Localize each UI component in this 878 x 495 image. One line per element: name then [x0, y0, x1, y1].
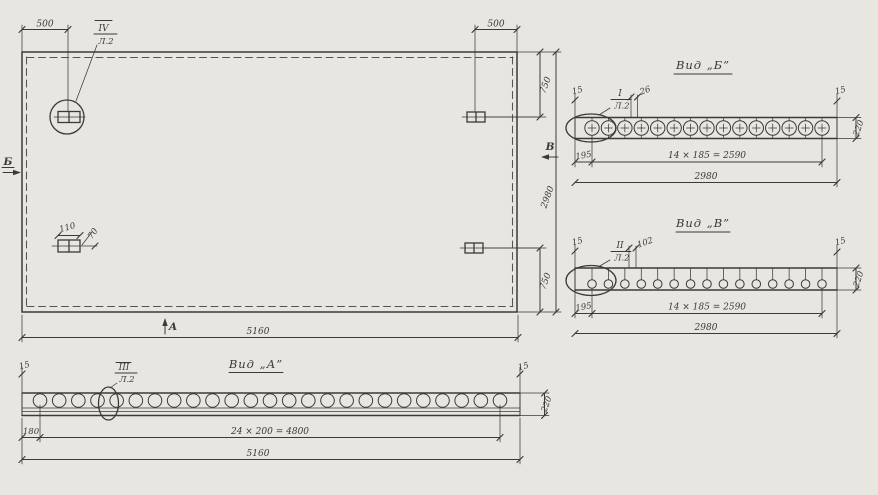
hole	[455, 394, 469, 408]
dim-500-right-label: 500	[487, 20, 504, 30]
dim-a-thickness: 220	[520, 390, 555, 419]
hole	[167, 394, 181, 408]
hole	[302, 394, 316, 408]
view-v-bolts	[588, 268, 827, 288]
hole	[52, 394, 66, 408]
hole	[801, 280, 810, 289]
hole	[752, 280, 761, 289]
hole	[397, 394, 411, 408]
dim-195-label: 195	[575, 150, 593, 163]
dim-15-label: 15	[834, 85, 847, 97]
dim-b-edge-left: 15	[571, 85, 584, 117]
dim-right-vertical: 750 750 2980	[483, 49, 561, 315]
hole	[588, 280, 597, 289]
dim-110-label: 110	[58, 221, 77, 235]
panel-outline	[22, 52, 517, 312]
dim-2980-label: 2980	[539, 185, 557, 211]
hole	[604, 280, 613, 289]
dim-b-holes: 195 14 × 185 = 2590	[572, 136, 825, 167]
hole	[736, 280, 745, 289]
hole	[72, 394, 86, 408]
dim-500-left-label: 500	[36, 20, 53, 30]
arrow-head	[13, 170, 21, 175]
dim-15-label: 15	[18, 360, 31, 372]
section-arrow-b-left: Б	[2, 156, 21, 175]
hole	[785, 280, 794, 289]
hole	[436, 394, 450, 408]
dim-a-edge-right: 15	[517, 361, 530, 392]
dim-102-label: 102	[636, 236, 655, 251]
callout-iv-ref: IV	[97, 24, 110, 34]
dim-4800-label: 24 × 200 = 4800	[230, 427, 309, 437]
dim-195-label: 195	[575, 301, 593, 314]
arrow-head	[541, 154, 549, 159]
dim-plan-width: 5160	[19, 315, 521, 342]
dim-b-total: 2980	[572, 139, 840, 188]
drawing-sheet: 500 IV Л.2 500	[0, 0, 878, 495]
hole	[653, 280, 662, 289]
callout-iii-sheet: Л.2	[118, 375, 134, 385]
view-b: Вид „Б” I Л.2 26 1	[566, 58, 867, 187]
arrow-b-label: Б	[3, 156, 13, 168]
dim-15-label: 15	[517, 361, 530, 373]
dim-220-label: 220	[539, 394, 554, 414]
callout-iv-sheet: Л.2	[97, 37, 113, 47]
dim-15-label: 15	[834, 236, 847, 248]
view-v-title: Вид „В”	[675, 216, 730, 230]
dim-a-holes: 180 24 × 200 = 4800	[19, 405, 503, 442]
dim-b-hole-dia: 26	[628, 84, 653, 117]
hole	[129, 394, 143, 408]
view-a-title: Вид „А”	[228, 357, 283, 371]
dim-b-thickness: 220	[837, 115, 867, 142]
section-arrow-v-right: В	[541, 141, 558, 160]
callout-oval	[566, 266, 616, 296]
arrow-v-label: В	[545, 141, 555, 153]
callout-i: I Л.2	[599, 89, 631, 115]
hole	[686, 280, 695, 289]
hole	[321, 394, 335, 408]
anchor-detail-mid-left: 110 70	[52, 221, 101, 252]
dim-v-bolts: 195 14 × 185 = 2590	[572, 289, 825, 318]
hole	[768, 280, 777, 289]
dim-70-label: 70	[86, 226, 101, 241]
dim-750-bottom-label: 750	[538, 271, 553, 291]
view-a: Вид „А” III Л.2 15	[18, 357, 555, 464]
dim-5160-label: 5160	[247, 449, 270, 459]
anchor-detail-top-left	[50, 100, 85, 134]
dim-b-edge-right: 15	[834, 85, 847, 117]
dim-v-thickness: 220	[837, 265, 867, 293]
dim-26-label: 26	[638, 84, 653, 98]
arrow-head	[162, 318, 167, 326]
hole	[670, 280, 679, 289]
dim-2590-label: 14 × 185 = 2590	[668, 151, 746, 161]
hole	[378, 394, 392, 408]
hole	[637, 280, 646, 289]
dim-15-label: 15	[571, 85, 584, 97]
dim-a-edge-left: 15	[18, 360, 31, 392]
dim-v-edge-right: 15	[834, 236, 847, 268]
view-a-holes	[33, 394, 507, 408]
callout-iii-ref: III	[118, 363, 130, 373]
hole	[244, 394, 258, 408]
hole	[719, 280, 728, 289]
hole	[417, 394, 431, 408]
view-a-strip	[22, 393, 520, 416]
view-b-title: Вид „Б”	[675, 58, 730, 72]
hole	[340, 394, 354, 408]
callout-iii: III Л.2	[110, 363, 137, 389]
hole	[206, 394, 220, 408]
dim-2590-label: 14 × 185 = 2590	[668, 303, 746, 313]
callout-ii-ref: II	[615, 241, 624, 251]
hole	[91, 394, 105, 408]
dim-5160-label: 5160	[247, 327, 270, 337]
plan-view: 500 IV Л.2 500	[2, 20, 561, 343]
hole	[621, 280, 630, 289]
hole	[703, 280, 712, 289]
dim-2980-label: 2980	[694, 323, 718, 333]
callout-ii-sheet: Л.2	[613, 254, 629, 264]
hole	[110, 394, 124, 408]
hole	[818, 280, 827, 289]
hole	[187, 394, 201, 408]
hole	[474, 394, 488, 408]
dim-220-label: 220	[851, 118, 866, 138]
callout-i-ref: I	[617, 89, 622, 99]
dim-a-total: 5160	[19, 418, 523, 464]
dim-2980-label: 2980	[694, 172, 718, 182]
dim-15-label: 15	[571, 236, 584, 248]
callout-ii: II Л.2	[599, 241, 631, 267]
hole	[263, 394, 277, 408]
arrow-a-label: А	[168, 321, 178, 333]
callout-iv: IV Л.2	[76, 21, 117, 102]
dim-220-label: 220	[851, 269, 866, 289]
dim-180-label: 180	[23, 427, 40, 437]
section-arrow-a-bottom: А	[162, 318, 177, 334]
callout-i-sheet: Л.2	[613, 102, 629, 112]
view-v: Вид „В” II Л.2 102	[566, 216, 867, 338]
hole	[148, 394, 162, 408]
hole	[225, 394, 239, 408]
technical-drawing: 500 IV Л.2 500	[0, 0, 878, 495]
dim-v-edge-left: 15	[571, 236, 584, 268]
hole	[282, 394, 296, 408]
hole	[359, 394, 373, 408]
dim-750-top-label: 750	[538, 75, 553, 95]
view-b-holes	[585, 118, 829, 139]
